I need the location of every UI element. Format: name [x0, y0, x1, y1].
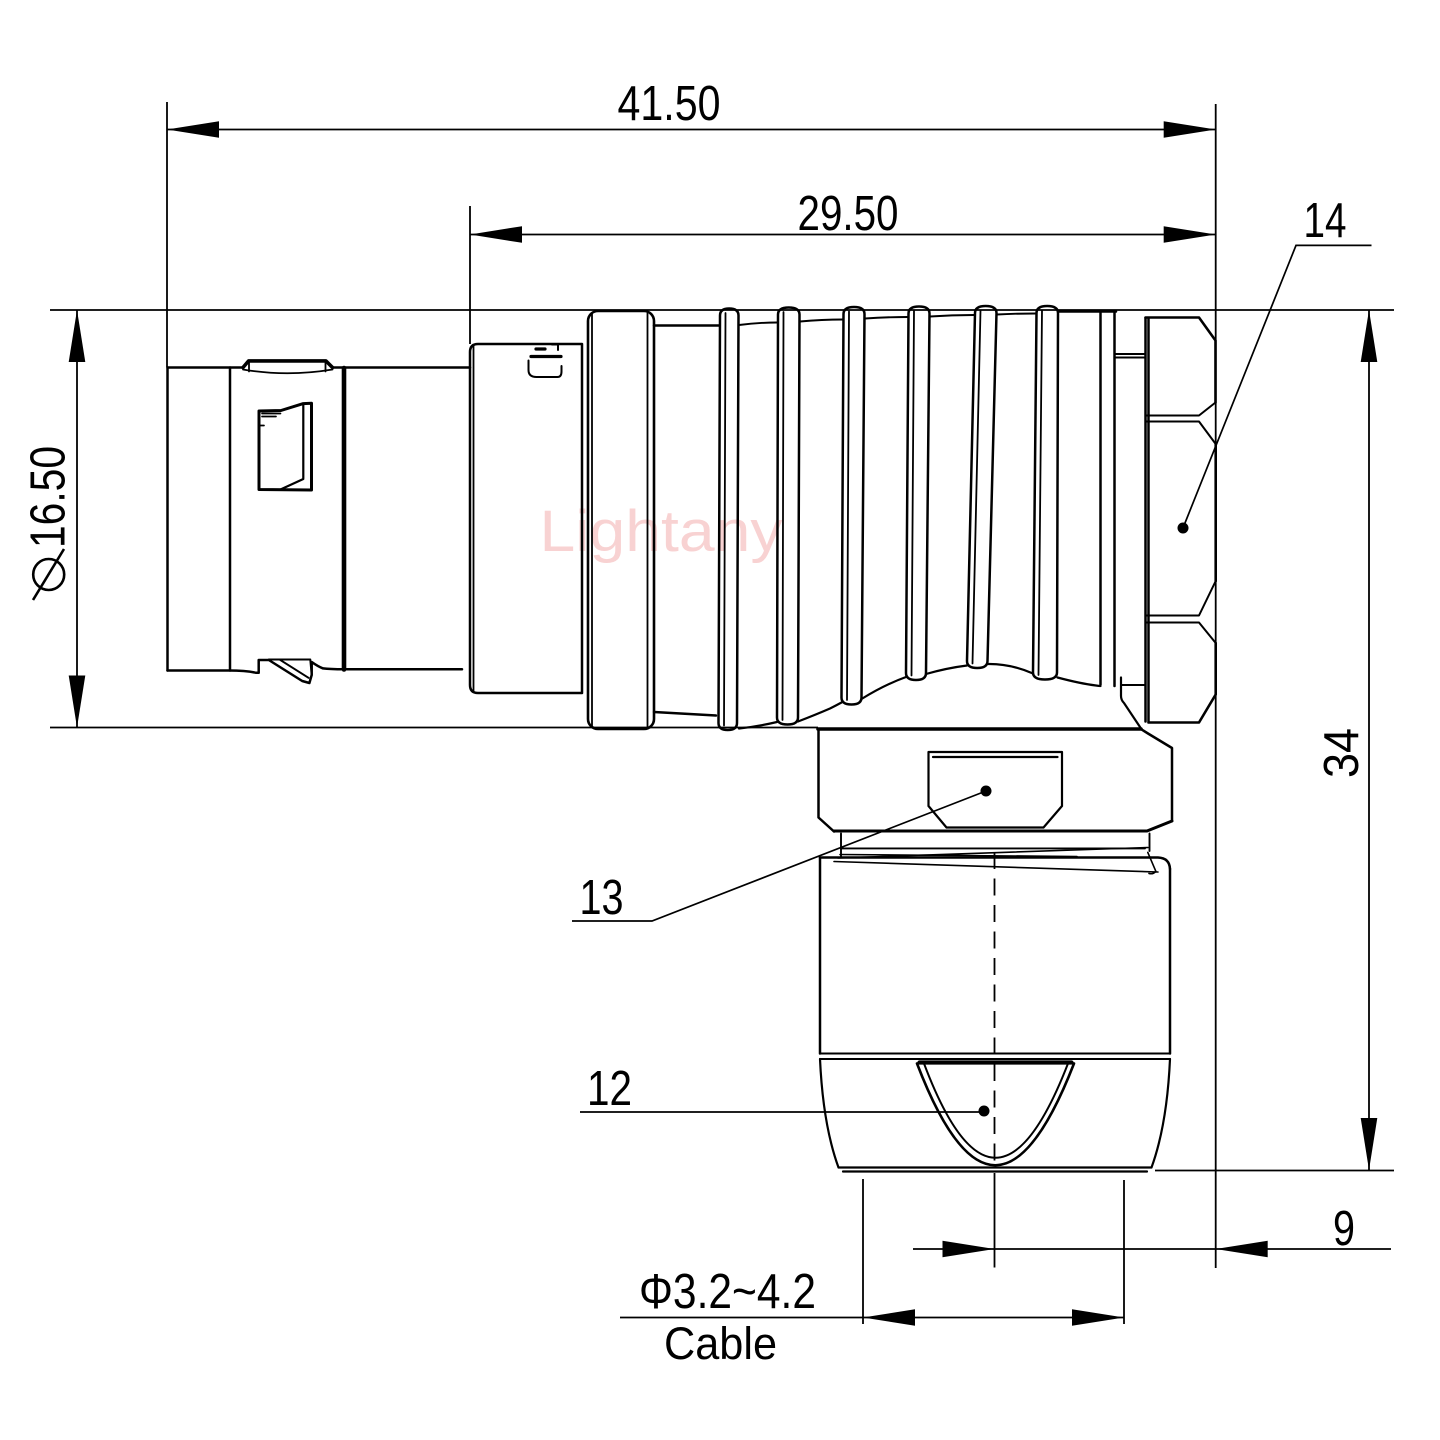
svg-text:12: 12 [587, 1062, 632, 1116]
svg-text:Φ3.2~4.2: Φ3.2~4.2 [639, 1265, 816, 1319]
svg-text:14: 14 [1304, 194, 1347, 248]
svg-text:9: 9 [1333, 1202, 1355, 1256]
svg-text:34: 34 [1315, 728, 1369, 778]
svg-text:Lightany: Lightany [540, 499, 783, 564]
svg-text:13: 13 [580, 871, 624, 925]
svg-text:16.50: 16.50 [22, 446, 76, 548]
svg-text:29.50: 29.50 [798, 187, 899, 241]
svg-text:Cable: Cable [664, 1318, 777, 1369]
svg-text:41.50: 41.50 [618, 77, 721, 131]
